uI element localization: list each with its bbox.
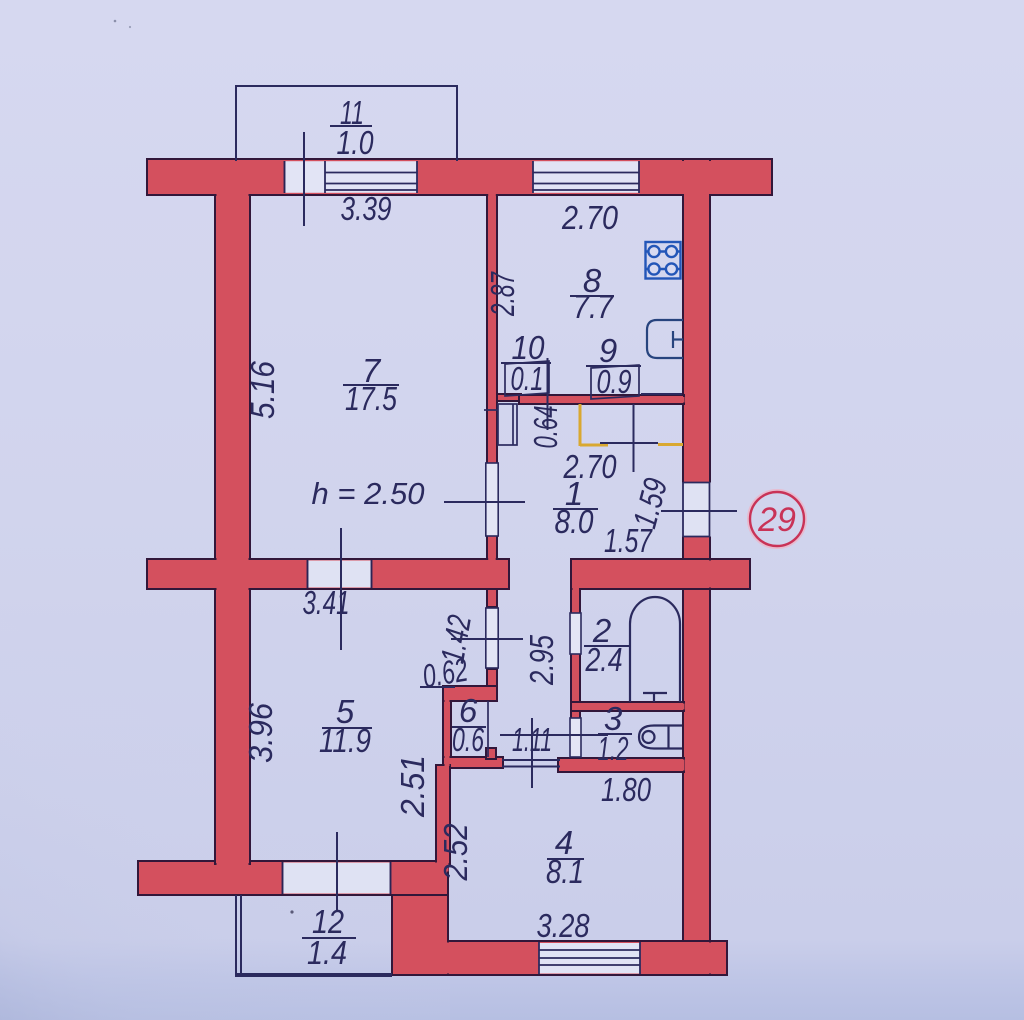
svg-text:3.39: 3.39 — [341, 190, 392, 227]
svg-text:5.16: 5.16 — [244, 360, 281, 419]
svg-text:2.95: 2.95 — [523, 635, 560, 686]
svg-text:1.4: 1.4 — [307, 934, 347, 971]
svg-text:17.5: 17.5 — [345, 380, 398, 417]
svg-text:29: 29 — [757, 501, 796, 539]
svg-text:2.70: 2.70 — [561, 199, 618, 236]
svg-text:2.4: 2.4 — [585, 641, 623, 678]
svg-text:3.96: 3.96 — [242, 702, 279, 763]
svg-text:0.62: 0.62 — [420, 651, 471, 695]
svg-text:0.6: 0.6 — [452, 721, 484, 758]
svg-text:1.2: 1.2 — [598, 730, 629, 767]
svg-text:7.7: 7.7 — [573, 288, 614, 325]
svg-text:3.41: 3.41 — [303, 584, 350, 621]
svg-text:0.9: 0.9 — [597, 363, 632, 400]
svg-text:8.1: 8.1 — [546, 853, 584, 890]
svg-text:0.1: 0.1 — [511, 360, 544, 397]
svg-text:2.70: 2.70 — [563, 448, 617, 485]
svg-text:1.57: 1.57 — [604, 522, 653, 559]
svg-text:2.52: 2.52 — [437, 824, 474, 882]
svg-text:1.80: 1.80 — [601, 771, 651, 808]
svg-text:h = 2.50: h = 2.50 — [312, 476, 425, 511]
svg-text:11.9: 11.9 — [319, 722, 371, 759]
svg-text:2.51: 2.51 — [394, 755, 431, 818]
svg-text:1.11: 1.11 — [512, 721, 552, 758]
svg-text:0.64: 0.64 — [527, 406, 564, 449]
svg-text:1.0: 1.0 — [337, 124, 375, 161]
svg-text:2.87: 2.87 — [484, 271, 521, 317]
svg-text:8.0: 8.0 — [555, 503, 595, 540]
svg-text:3.28: 3.28 — [537, 907, 591, 944]
